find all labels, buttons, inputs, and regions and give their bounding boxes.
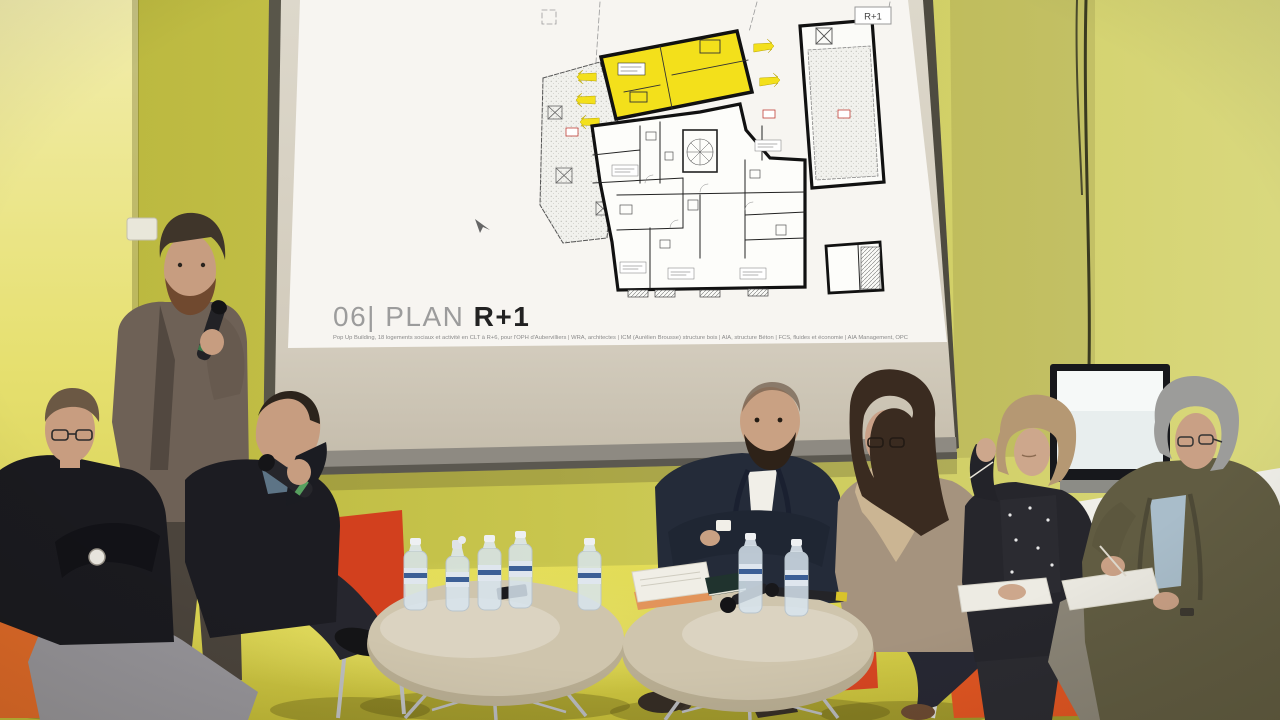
photo-vignette [0,0,1280,720]
conference-room-photo: R+1 06| PLAN R+1 Pop Up Building, 18 log… [0,0,1280,720]
photo-canvas: R+1 06| PLAN R+1 Pop Up Building, 18 log… [0,0,1280,720]
